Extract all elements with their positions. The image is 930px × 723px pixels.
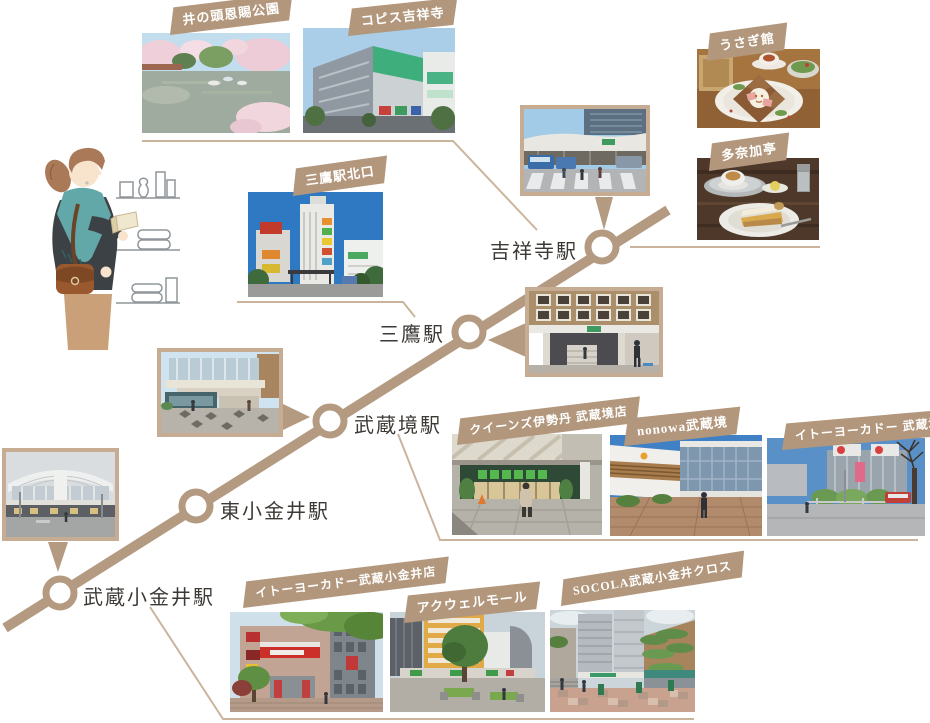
- pointer-musashisakai-photo: [283, 404, 310, 430]
- photo-usagikan: [697, 49, 820, 128]
- photo-musashisakai-station: [157, 348, 283, 437]
- photo-itoyokado-musashisakai: [767, 438, 925, 536]
- photo-musashikoganei-station: [2, 448, 119, 541]
- station-label-kichijoji: 吉祥寺駅: [490, 235, 578, 264]
- station-label-mitaka: 三鷹駅: [379, 318, 445, 347]
- station-label-higashikoganei: 東小金井駅: [220, 495, 330, 524]
- photo-kichijoji-station: [520, 105, 650, 196]
- station-marker-musashikoganei: [46, 579, 74, 607]
- station-marker-musashisakai: [316, 407, 344, 435]
- station-area-guide-map: 吉祥寺駅 三鷹駅 武蔵境駅 東小金井駅 武蔵小金井駅 井の頭恩賜公園: [0, 0, 930, 723]
- photo-tanakatei: [697, 158, 819, 240]
- station-label-musashisakai: 武蔵境駅: [354, 409, 442, 438]
- station-label-musashikoganei: 武蔵小金井駅: [83, 581, 215, 610]
- station-marker-higashikoganei: [182, 492, 210, 520]
- woman-shopper-illustration: [20, 138, 185, 353]
- station-marker-kichijoji: [588, 233, 616, 261]
- pointer-kichijoji-photo: [595, 197, 613, 230]
- photo-queens-isetan: [452, 434, 602, 535]
- photo-mitaka-station: [525, 287, 663, 377]
- pointer-musashikoganei-photo: [48, 542, 68, 572]
- photo-socola-cross: [550, 610, 695, 712]
- photo-acwell-mall: [390, 612, 545, 712]
- photo-itoyokado-musashikoganei: [230, 612, 383, 712]
- photo-inokashira-park: [142, 33, 290, 133]
- station-marker-mitaka: [455, 318, 483, 346]
- woman-figure: [40, 148, 138, 350]
- photo-coppice-kichijoji: [303, 28, 455, 133]
- photo-nonowa: [610, 435, 762, 536]
- photo-mitaka-north-exit: [248, 192, 383, 297]
- connector-mitaka-north: [237, 302, 415, 317]
- pointer-mitaka-photo: [488, 323, 526, 357]
